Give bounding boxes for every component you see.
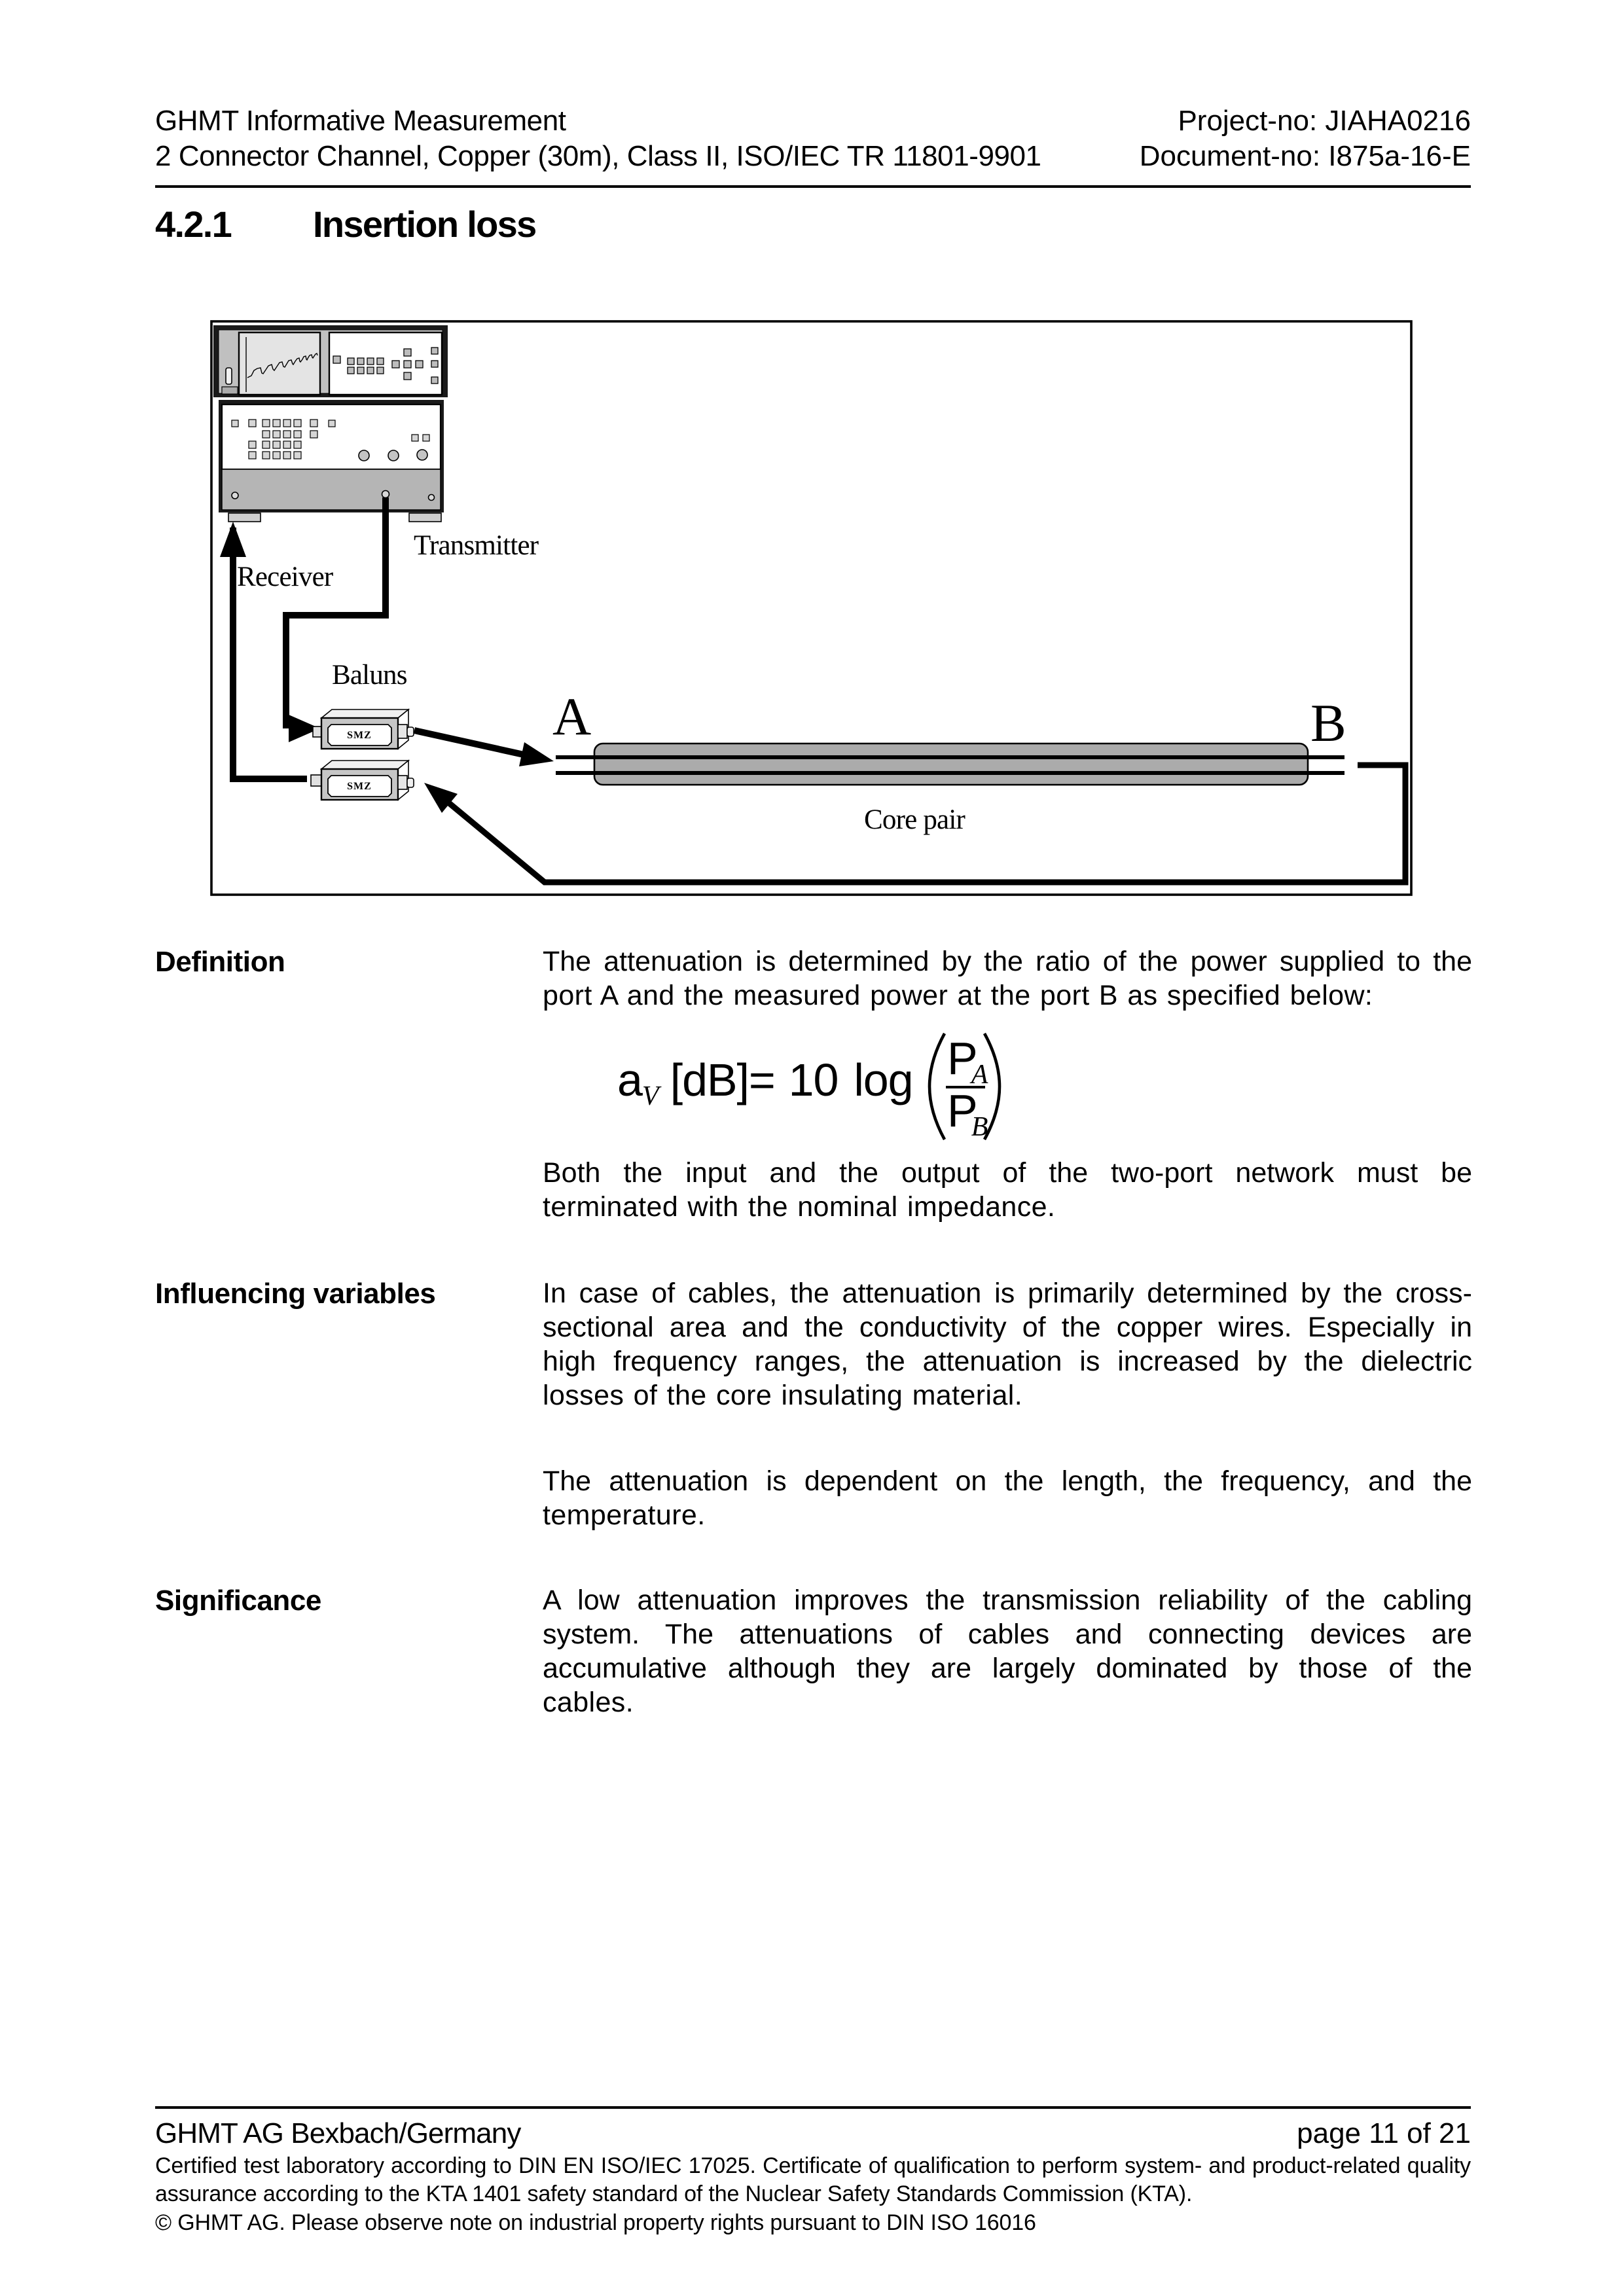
svg-text:Receiver: Receiver — [237, 562, 333, 592]
svg-text:Core pair: Core pair — [864, 804, 965, 835]
svg-text:B: B — [1310, 693, 1346, 753]
svg-text:Transmitter: Transmitter — [414, 530, 539, 561]
svg-text:Baluns: Baluns — [332, 660, 407, 691]
svg-text:SMZ: SMZ — [347, 781, 372, 792]
svg-text:SMZ: SMZ — [347, 730, 372, 741]
svg-text:A: A — [552, 687, 591, 746]
